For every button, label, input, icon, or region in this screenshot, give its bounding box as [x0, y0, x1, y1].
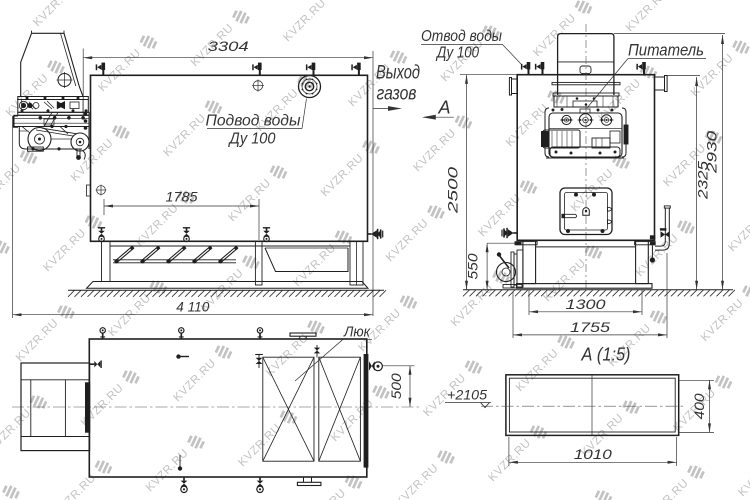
svg-text:газов: газов — [377, 84, 417, 105]
svg-text:Питатель: Питатель — [628, 41, 704, 60]
svg-text:2930: 2930 — [704, 131, 720, 175]
svg-text:500: 500 — [389, 373, 404, 400]
svg-text:3304: 3304 — [208, 38, 249, 54]
svg-text:4 110: 4 110 — [176, 299, 209, 315]
svg-text:400: 400 — [692, 393, 707, 420]
svg-text:2500: 2500 — [445, 167, 461, 215]
svg-text:Подвод воды: Подвод воды — [206, 113, 301, 130]
svg-text:1785: 1785 — [166, 189, 198, 205]
svg-text:Выход: Выход — [376, 63, 420, 84]
svg-text:Ду 100: Ду 100 — [435, 45, 479, 62]
svg-text:+2105: +2105 — [447, 387, 487, 403]
svg-text:Люк: Люк — [343, 324, 371, 341]
svg-text:А: А — [437, 98, 450, 118]
svg-text:А (1:5): А (1:5) — [581, 345, 631, 365]
svg-text:1300: 1300 — [566, 296, 606, 312]
svg-text:550: 550 — [466, 253, 481, 280]
svg-text:Отвод воды: Отвод воды — [421, 28, 502, 45]
svg-text:1010: 1010 — [574, 446, 612, 462]
svg-text:1755: 1755 — [570, 319, 610, 335]
svg-text:Ду 100: Ду 100 — [228, 131, 276, 148]
